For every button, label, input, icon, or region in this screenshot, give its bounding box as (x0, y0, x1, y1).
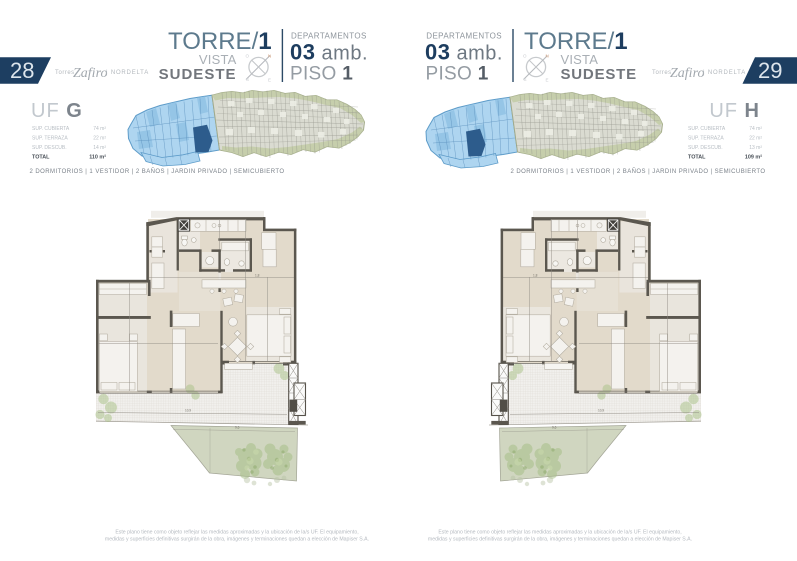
svg-text:22 m²: 22 m² (93, 136, 106, 142)
svg-text:1,8: 1,8 (533, 273, 538, 277)
svg-text:2 DORMITORIOS | 1 VESTIDOR | 2: 2 DORMITORIOS | 1 VESTIDOR | 2 BAÑOS | J… (29, 168, 284, 175)
svg-text:medidas y superficies definiti: medidas y superficies definitivas surgir… (428, 537, 692, 543)
svg-text:TORRE/1: TORRE/1 (168, 28, 272, 55)
svg-text:1,8: 1,8 (255, 273, 260, 277)
svg-text:74 m²: 74 m² (93, 126, 106, 132)
svg-text:UF G: UF G (31, 100, 83, 122)
svg-text:SUP. CUBIERTA: SUP. CUBIERTA (688, 126, 726, 132)
svg-text:PISO 1: PISO 1 (290, 64, 353, 85)
svg-text:TOTAL: TOTAL (32, 155, 50, 161)
svg-text:N: N (268, 54, 271, 59)
svg-text:9,6: 9,6 (235, 426, 240, 430)
svg-text:SUP. DESCUB.: SUP. DESCUB. (688, 145, 723, 151)
svg-text:Torres: Torres (652, 70, 672, 76)
svg-text:| NORDELTA: | NORDELTA (703, 70, 746, 76)
svg-text:110 m²: 110 m² (89, 155, 106, 161)
svg-text:29: 29 (758, 58, 782, 83)
svg-text:13 m²: 13 m² (749, 145, 762, 151)
svg-text:UF H: UF H (709, 100, 760, 122)
svg-text:03 amb.: 03 amb. (425, 40, 503, 65)
svg-text:Zafiro: Zafiro (73, 66, 108, 81)
svg-text:E: E (268, 78, 271, 83)
svg-text:TORRE/1: TORRE/1 (524, 28, 628, 55)
svg-text:9,6: 9,6 (552, 426, 557, 430)
svg-text:SUP. DESCUB.: SUP. DESCUB. (32, 145, 67, 151)
svg-text:SUP. TERRAZA: SUP. TERRAZA (32, 136, 68, 142)
svg-text:2 DORMITORIOS | 1 VESTIDOR | 2: 2 DORMITORIOS | 1 VESTIDOR | 2 BAÑOS | J… (510, 168, 765, 175)
svg-text:28: 28 (10, 58, 34, 83)
svg-text:Este plano tiene como objeto r: Este plano tiene como objeto reflejar la… (115, 530, 358, 536)
svg-text:03 amb.: 03 amb. (290, 40, 368, 65)
svg-text:| NORDELTA: | NORDELTA (106, 70, 149, 76)
svg-text:PISO 1: PISO 1 (426, 64, 489, 85)
svg-text:10,9: 10,9 (185, 409, 191, 413)
svg-text:SUDESTE: SUDESTE (159, 66, 237, 83)
svg-text:Este plano tiene como objeto r: Este plano tiene como objeto reflejar la… (438, 530, 681, 536)
svg-text:109 m²: 109 m² (745, 155, 762, 161)
svg-text:medidas y superficies definiti: medidas y superficies definitivas surgir… (105, 537, 369, 543)
svg-text:22 m²: 22 m² (749, 136, 762, 142)
svg-text:VISTA: VISTA (199, 52, 237, 67)
svg-text:TOTAL: TOTAL (688, 155, 706, 161)
svg-text:O: O (246, 54, 250, 59)
svg-text:SUDESTE: SUDESTE (561, 66, 637, 83)
svg-text:VISTA: VISTA (561, 52, 599, 67)
svg-text:14 m²: 14 m² (93, 145, 106, 151)
svg-text:Torres: Torres (55, 70, 75, 76)
svg-text:74 m²: 74 m² (749, 126, 762, 132)
svg-text:S: S (246, 77, 249, 82)
svg-text:SUP. TERRAZA: SUP. TERRAZA (688, 136, 724, 142)
svg-text:10,9: 10,9 (598, 409, 604, 413)
svg-text:SUP. CUBIERTA: SUP. CUBIERTA (32, 126, 70, 132)
svg-text:Zafiro: Zafiro (670, 66, 705, 81)
